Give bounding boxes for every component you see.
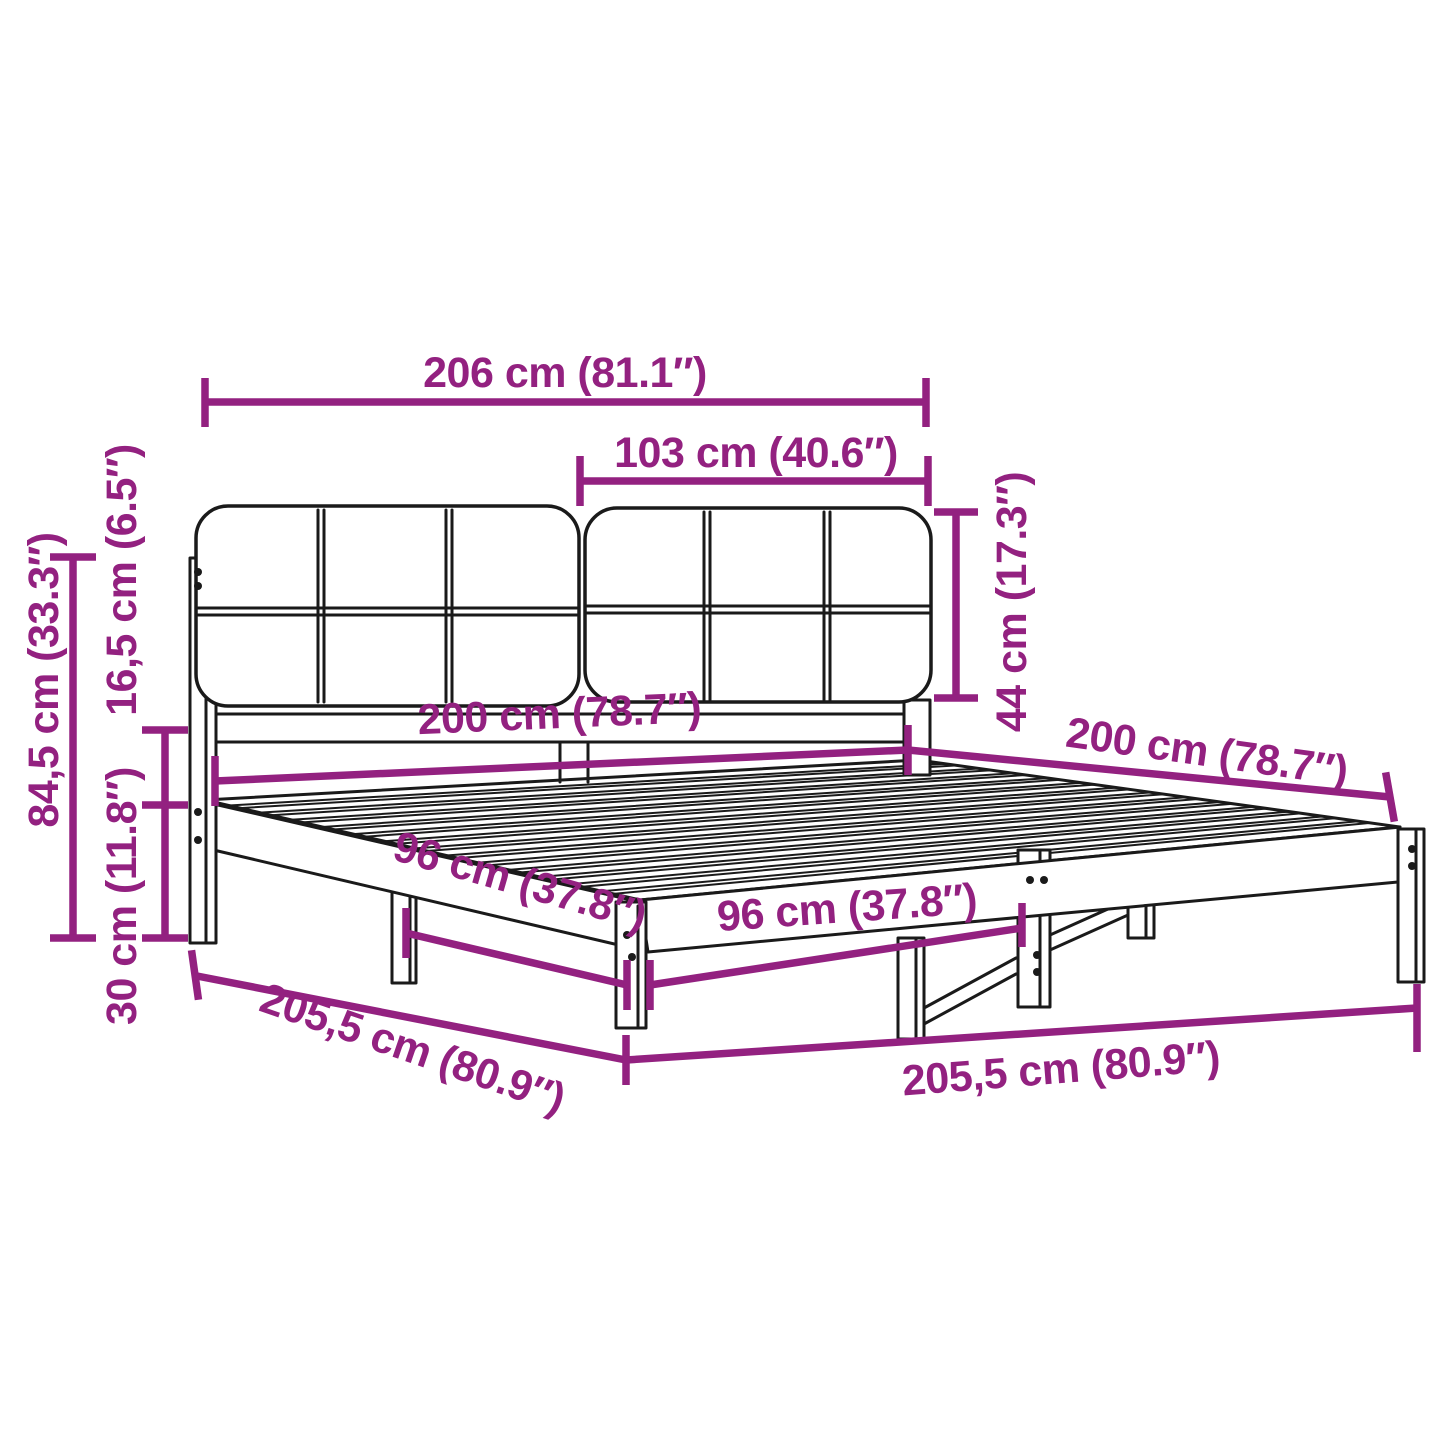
label-base-length-side: 205,5 cm (80.9″) [254, 974, 571, 1123]
label-headboard-height: 44 cm (17.3″) [988, 472, 1036, 732]
label-frame-height: 30 cm (11.8″) [98, 767, 146, 1025]
diagram-canvas: 206 cm (81.1″) 103 cm (40.6″) 44 cm (17.… [0, 0, 1445, 1445]
center-rear-leg [898, 938, 924, 1039]
label-half-width: 103 cm (40.6″) [614, 429, 898, 477]
label-base-length-front: 205,5 cm (80.9″) [900, 1033, 1221, 1106]
label-cushion-above-frame: 16,5 cm (6.5″) [98, 444, 146, 716]
dimension-labels: 206 cm (81.1″) 103 cm (40.6″) 44 cm (17.… [20, 349, 1351, 1123]
bed-dimension-diagram: 206 cm (81.1″) 103 cm (40.6″) 44 cm (17.… [0, 0, 1445, 1445]
headboard-cushion-left [196, 506, 579, 706]
dim-headboard-height-line [934, 512, 978, 698]
label-total-width: 206 cm (81.1″) [423, 349, 707, 397]
dim-frame-heights-line [142, 730, 188, 938]
label-overall-height: 84,5 cm (33.3″) [20, 532, 68, 827]
